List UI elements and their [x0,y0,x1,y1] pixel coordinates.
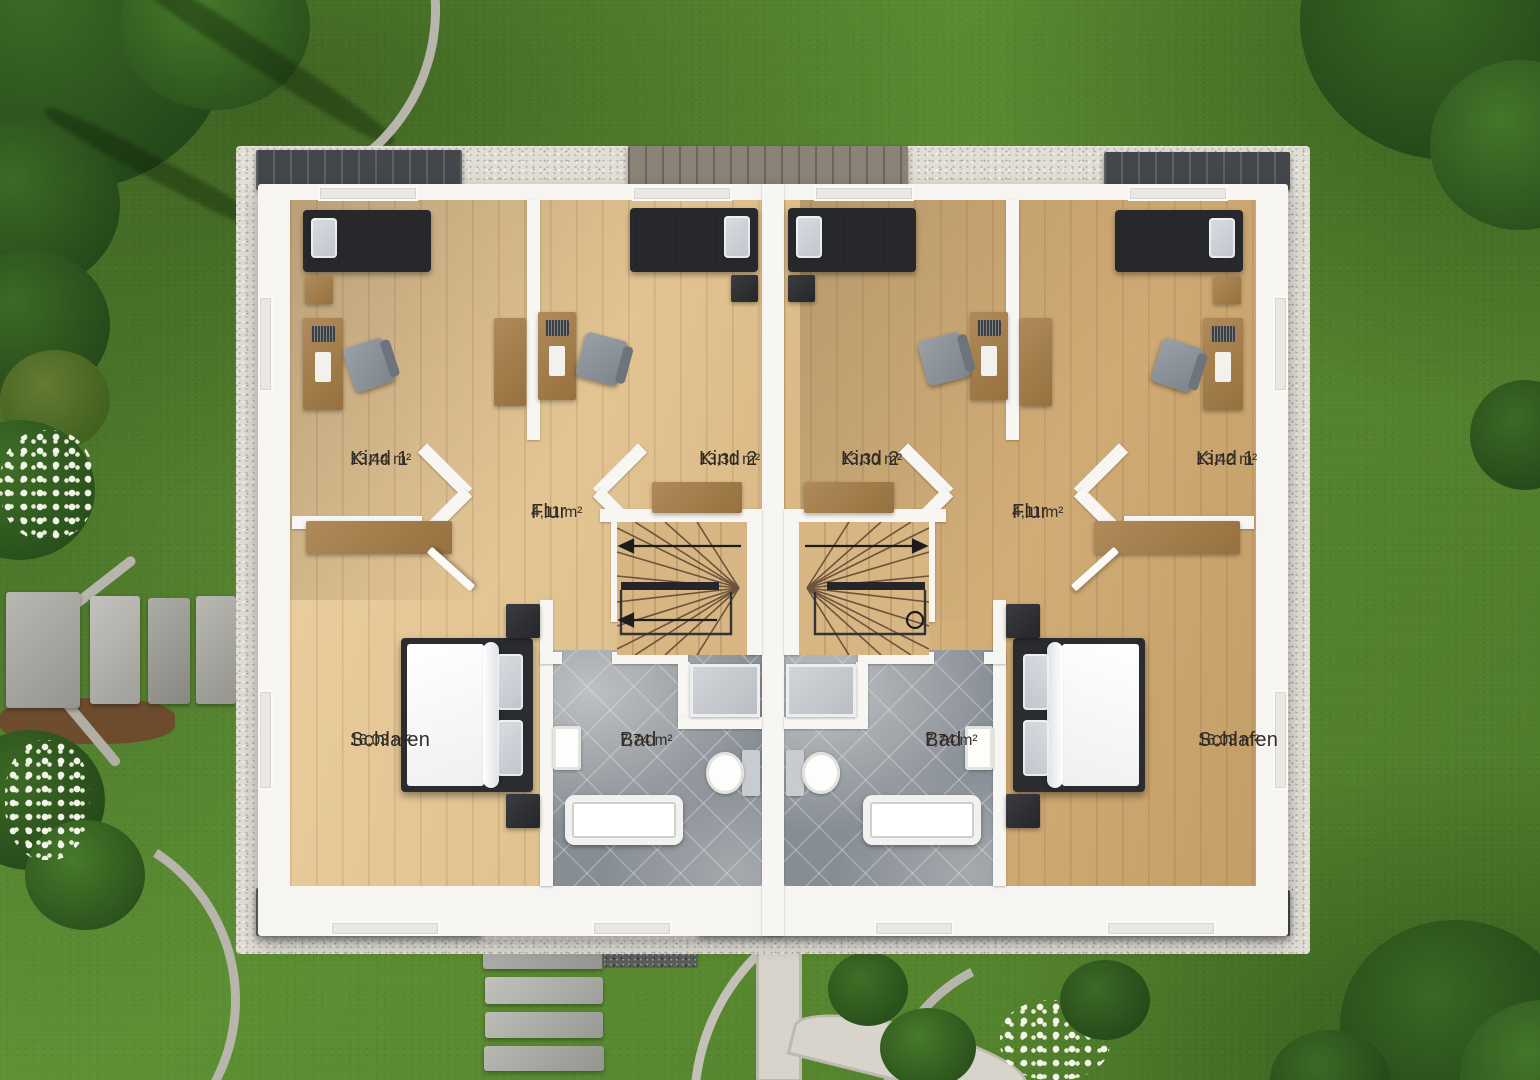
wall [856,662,868,719]
floorplan-scene: Kind 1 13,44 m² Kind 2 13,31 m² Flur 4,1… [0,0,1540,1080]
single-bed [630,208,758,272]
sideboard [652,482,742,513]
nightstand [1006,604,1040,638]
room-area: 13,44 m² [350,451,411,469]
toilet [706,752,744,794]
window [1128,186,1228,201]
nightstand [305,276,333,304]
double-bed [401,638,533,792]
nightstand [1213,276,1241,304]
step [485,977,603,1004]
room-area: 7,74 m² [925,732,978,750]
room-area: 16,03 m² [1198,732,1259,750]
wall [747,522,762,655]
step [485,1012,603,1038]
wall [784,717,868,729]
wardrobe [494,318,526,406]
wall [784,522,799,655]
staircase-right-unit [799,522,929,655]
wall [540,600,553,886]
wall [984,652,1006,664]
window [632,186,732,201]
double-bed [1013,638,1145,792]
wall [678,717,762,729]
desk [970,312,1008,400]
single-bed [788,208,916,272]
single-bed [303,210,431,272]
nightstand [1006,794,1040,828]
room-area: 7,74 m² [620,732,673,750]
stepping-stone [90,596,140,704]
bathtub [565,795,683,845]
wall [993,600,1006,886]
staircase-left-unit [617,522,747,655]
window [258,296,273,392]
stepping-stone [196,596,236,704]
shower [690,664,760,717]
sink [553,726,581,770]
stepping-stone [6,592,80,708]
window [1106,921,1216,936]
desk [538,312,576,400]
party-wall [762,184,784,936]
nightstand [788,275,815,302]
window [1273,296,1288,392]
window [874,921,954,936]
room-area: 4,11 m² [531,504,582,522]
wardrobe [1020,318,1052,406]
bush [1060,960,1150,1040]
nightstand [506,794,540,828]
room-area: 13,42 m² [1196,451,1257,469]
stepping-stone [148,598,190,704]
window [330,921,440,936]
room-area: 4,11 m² [1012,504,1063,522]
toilet-tank [742,750,760,796]
nightstand [506,604,540,638]
bathtub [863,795,981,845]
window [592,921,672,936]
toilet [802,752,840,794]
room-area: 16,03 m² [350,732,411,750]
room-area: 13,30 m² [841,451,902,469]
wall [678,662,690,719]
shower [786,664,856,717]
bush [828,952,908,1026]
step [484,1046,604,1071]
desk [1203,318,1243,410]
sideboard [804,482,894,513]
wall [540,652,562,664]
window [258,690,273,790]
desk [303,318,343,410]
nightstand [731,275,758,302]
single-bed [1115,210,1243,272]
room-area: 13,31 m² [699,451,760,469]
garden-path [756,936,802,1080]
window [814,186,914,201]
window [318,186,418,201]
flower-bed [0,430,95,540]
bush [880,1008,976,1080]
